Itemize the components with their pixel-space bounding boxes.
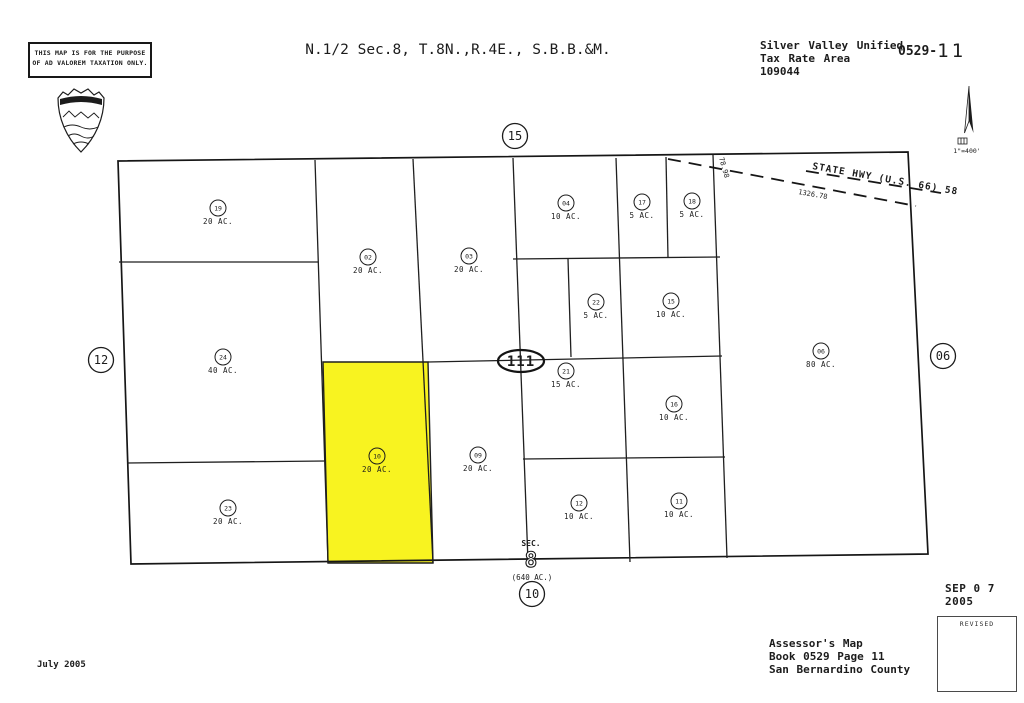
parcel-label-09: 0920 AC. (463, 447, 493, 473)
svg-text:10 AC.: 10 AC. (551, 212, 581, 221)
svg-text:5 AC.: 5 AC. (583, 311, 608, 320)
svg-text:20 AC.: 20 AC. (353, 266, 383, 275)
section-marker: SEC. 8 (640 AC.) (512, 539, 553, 582)
adjacent-section-06: 06 (931, 344, 956, 369)
svg-text:16: 16 (670, 401, 678, 409)
svg-text:15: 15 (508, 129, 522, 143)
scale-label: 1"=400' (953, 147, 980, 155)
assessor-block: Assessor's Map Book 0529 Page 11 San Ber… (769, 637, 910, 676)
svg-text:10 AC.: 10 AC. (656, 310, 686, 319)
svg-text:03: 03 (465, 253, 473, 261)
parcel-label-06: 0680 AC. (806, 343, 836, 369)
svg-text:20 AC.: 20 AC. (213, 517, 243, 526)
adjacent-section-15: 15 (503, 124, 528, 149)
parcel-label-23: 2320 AC. (213, 500, 243, 526)
svg-text:02: 02 (364, 254, 372, 262)
svg-text:20 AC.: 20 AC. (362, 465, 392, 474)
svg-text:06: 06 (817, 348, 825, 356)
parcel-label-02: 0220 AC. (353, 249, 383, 275)
svg-text:17: 17 (638, 199, 646, 207)
highlighted-parcel (323, 362, 433, 563)
assessor-map-page: THIS MAP IS FOR THE PURPOSE OF AD VALORE… (0, 0, 1024, 703)
svg-text:40 AC.: 40 AC. (208, 366, 238, 375)
parcel-label-18: 185 AC. (679, 193, 704, 219)
assessor-line1: Assessor's Map (769, 637, 910, 650)
adjacent-section-10: 10 (520, 582, 545, 607)
svg-text:23: 23 (224, 505, 232, 513)
svg-text:21: 21 (562, 368, 570, 376)
svg-text:22: 22 (592, 299, 600, 307)
svg-text:09: 09 (474, 452, 482, 460)
parcel-label-21: 2115 AC. (551, 363, 581, 389)
scale-bar-icon (958, 138, 967, 144)
svg-text:80 AC.: 80 AC. (806, 360, 836, 369)
date-prepared: July 2005 (37, 660, 86, 670)
svg-text:10 AC.: 10 AC. (659, 413, 689, 422)
parcel-label-16: 1610 AC. (659, 396, 689, 422)
assessor-line3: San Bernardino County (769, 663, 910, 676)
date-stamp: SEP 0 7 2005 (945, 582, 1024, 608)
section-marker-label: SEC. (521, 539, 540, 548)
parcel-label-17: 175 AC. (629, 194, 654, 220)
parcel-label-03: 0320 AC. (454, 248, 484, 274)
svg-text:10 AC.: 10 AC. (664, 510, 694, 519)
parcel-label-12: 1210 AC. (564, 495, 594, 521)
svg-text:18: 18 (688, 198, 696, 206)
svg-text:11: 11 (675, 498, 683, 506)
svg-text:12: 12 (575, 500, 583, 508)
svg-text:19: 19 (214, 205, 222, 213)
svg-text:10: 10 (373, 453, 381, 461)
svg-text:20 AC.: 20 AC. (203, 217, 233, 226)
highway-label: STATE HWY (U.S. 66) 58 (811, 161, 959, 198)
svg-text:5 AC.: 5 AC. (629, 211, 654, 220)
north-arrow-icon (958, 86, 974, 144)
parcel-label-19: 1920 AC. (203, 200, 233, 226)
svg-text:20 AC.: 20 AC. (463, 464, 493, 473)
svg-text:24: 24 (219, 354, 227, 362)
adjacent-section-12: 12 (89, 348, 114, 373)
svg-text:04: 04 (562, 200, 570, 208)
revised-box: REVISED (937, 616, 1017, 692)
svg-text:06: 06 (936, 349, 950, 363)
parcel-label-15: 1510 AC. (656, 293, 686, 319)
parcel-label-22: 225 AC. (583, 294, 608, 320)
svg-text:5 AC.: 5 AC. (679, 210, 704, 219)
svg-text:10: 10 (525, 587, 539, 601)
svg-text:15: 15 (667, 298, 675, 306)
svg-text:10 AC.: 10 AC. (564, 512, 594, 521)
parcel-map: STATE HWY (U.S. 66) 58 1326.78 78.98 SEC… (0, 0, 1024, 703)
svg-text:111: 111 (507, 354, 535, 370)
highway-dimension: 1326.78 (798, 188, 828, 201)
svg-text:20 AC.: 20 AC. (454, 265, 484, 274)
svg-text:12: 12 (94, 353, 108, 367)
assessor-line2: Book 0529 Page 11 (769, 650, 910, 663)
revised-label: REVISED (938, 620, 1016, 628)
svg-text:15 AC.: 15 AC. (551, 380, 581, 389)
parcel-label-11: 1110 AC. (664, 493, 694, 519)
edge-dimension: 78.98 (717, 156, 731, 178)
parcel-label-04: 0410 AC. (551, 195, 581, 221)
parcel-label-24: 2440 AC. (208, 349, 238, 375)
section-marker-number: 8 (525, 548, 538, 572)
section-marker-acreage: (640 AC.) (512, 573, 553, 582)
